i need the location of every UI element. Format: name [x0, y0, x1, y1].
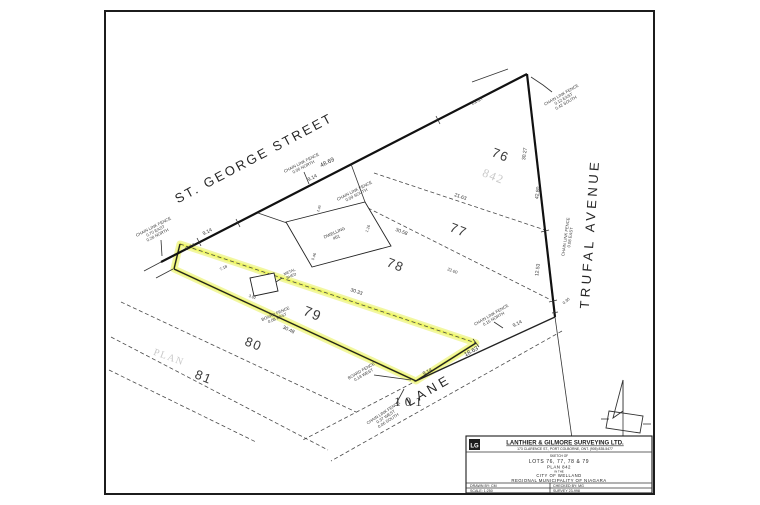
- dwelling-parcel-line-west: [258, 213, 287, 223]
- trufal-avenue-line: [527, 74, 555, 317]
- title-company-address: 173 CLARENCE ST., PORT COLBORNE, ONT. (9…: [517, 447, 613, 451]
- fence-note-chain-006-north: CHAIN LINK FENCE 0.06 NORTH: [283, 152, 322, 178]
- dim-trufal-3027: 30.27: [521, 147, 529, 160]
- survey-drawing: ST. GEORGE STREET TRUFAL AVENUE LANE 76 …: [106, 12, 653, 493]
- street-end-tick: [144, 262, 161, 271]
- ghost-plan-word: PLAN: [152, 347, 186, 368]
- title-survey-number: SURVEY 23-998: [553, 489, 580, 493]
- dim-trufal-030: 0.30: [561, 296, 571, 305]
- survey-sketch-screenshot: ST. GEORGE STREET TRUFAL AVENUE LANE 76 …: [0, 0, 760, 505]
- dim-street-2127: 21.27: [471, 95, 485, 106]
- fence-note-board-018-west: BOARD FENCE 0.18 WEST: [347, 361, 378, 385]
- title-scale: SCALE: 1:250: [470, 489, 493, 493]
- fence-note-chain-009-south: CHAIN LINK FENCE 0.09 SOUTH: [336, 180, 375, 206]
- fence-note-leader-f1: [161, 240, 162, 256]
- north-arrow-base: [606, 411, 643, 433]
- lot-78-label: 78: [385, 255, 407, 275]
- title-sketch-of: SKETCH OF: [550, 454, 568, 458]
- dim-lot-3058: 30.58: [394, 227, 408, 237]
- title-checked-by: CHECKED BY: MG: [553, 484, 584, 488]
- fence-note-chain-012-east: CHAIN LINK FENCE 0.12 EAST 0.42 SOUTH: [543, 83, 584, 115]
- lot-76-label: 76: [490, 145, 512, 165]
- dim-lane-914-a: 9.14: [512, 319, 524, 329]
- lane-north-line-dashed: [301, 380, 418, 441]
- lot-79-highlight-glow: [174, 244, 476, 381]
- apex-bar-mark: [472, 69, 508, 82]
- fence-note-leader-apex: [531, 77, 552, 92]
- lot-77-label: 77: [448, 220, 470, 240]
- street-name-trufal: TRUFAL AVENUE: [577, 158, 602, 309]
- dim-misc-140: 1.40: [316, 205, 322, 213]
- title-block: LG LANTHIER & GILMORE SURVEYING LTD. 173…: [466, 436, 652, 493]
- dim-trufal-1253: 12.53: [534, 263, 542, 276]
- fence-note-leader-f6: [494, 322, 503, 328]
- lot-80-label: 80: [243, 334, 265, 354]
- lot-81-label: 81: [193, 367, 215, 387]
- dim-street-4869: 48.69: [319, 157, 336, 169]
- survey-plan-paper: ST. GEORGE STREET TRUFAL AVENUE LANE 76 …: [104, 10, 655, 495]
- trufal-tick-030: [552, 312, 558, 313]
- fence-note-chain-008-east: CHAIN LINK FENCE 0.08 EAST: [560, 217, 575, 257]
- ghost-plan-number: 842: [480, 166, 506, 187]
- lot79-south-end-tick: [156, 269, 173, 278]
- lot-line-81-south: [111, 337, 328, 450]
- title-drawn-by: DRAWN BY: CM: [470, 484, 497, 488]
- dim-lot-2200: 22.00: [447, 266, 459, 275]
- title-region: REGIONAL MUNICIPALITY OF NIAGARA: [511, 478, 606, 483]
- fence-note-chain-015-north: CHAIN LINK FENCE 0.15 NORTH: [473, 303, 512, 331]
- fence-note-chain-070-east: CHAIN LINK FENCE 0.70 EAST 0.28 NORTH: [135, 216, 176, 246]
- lot-line-corner: [109, 370, 256, 442]
- title-company-name: LANTHIER & GILMORE SURVEYING LTD.: [506, 441, 624, 447]
- surveyor-logo-text: LG: [470, 444, 479, 450]
- dim-lot-3033: 30.33: [349, 287, 363, 297]
